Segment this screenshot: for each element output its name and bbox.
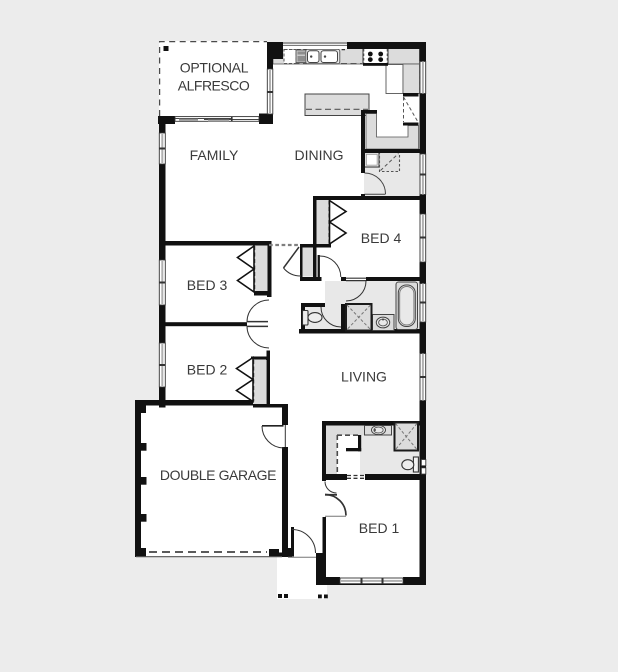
svg-text:DOUBLE GARAGE: DOUBLE GARAGE	[160, 467, 276, 483]
svg-text:BED 4: BED 4	[361, 230, 402, 246]
svg-text:BED 2: BED 2	[187, 362, 228, 378]
svg-text:BED 3: BED 3	[187, 277, 228, 293]
svg-text:BED 1: BED 1	[359, 520, 400, 536]
svg-text:LIVING: LIVING	[341, 369, 387, 385]
svg-text:ALFRESCO: ALFRESCO	[178, 78, 250, 94]
svg-text:OPTIONAL: OPTIONAL	[180, 60, 249, 76]
svg-text:FAMILY: FAMILY	[190, 147, 239, 163]
svg-text:DINING: DINING	[295, 147, 344, 163]
